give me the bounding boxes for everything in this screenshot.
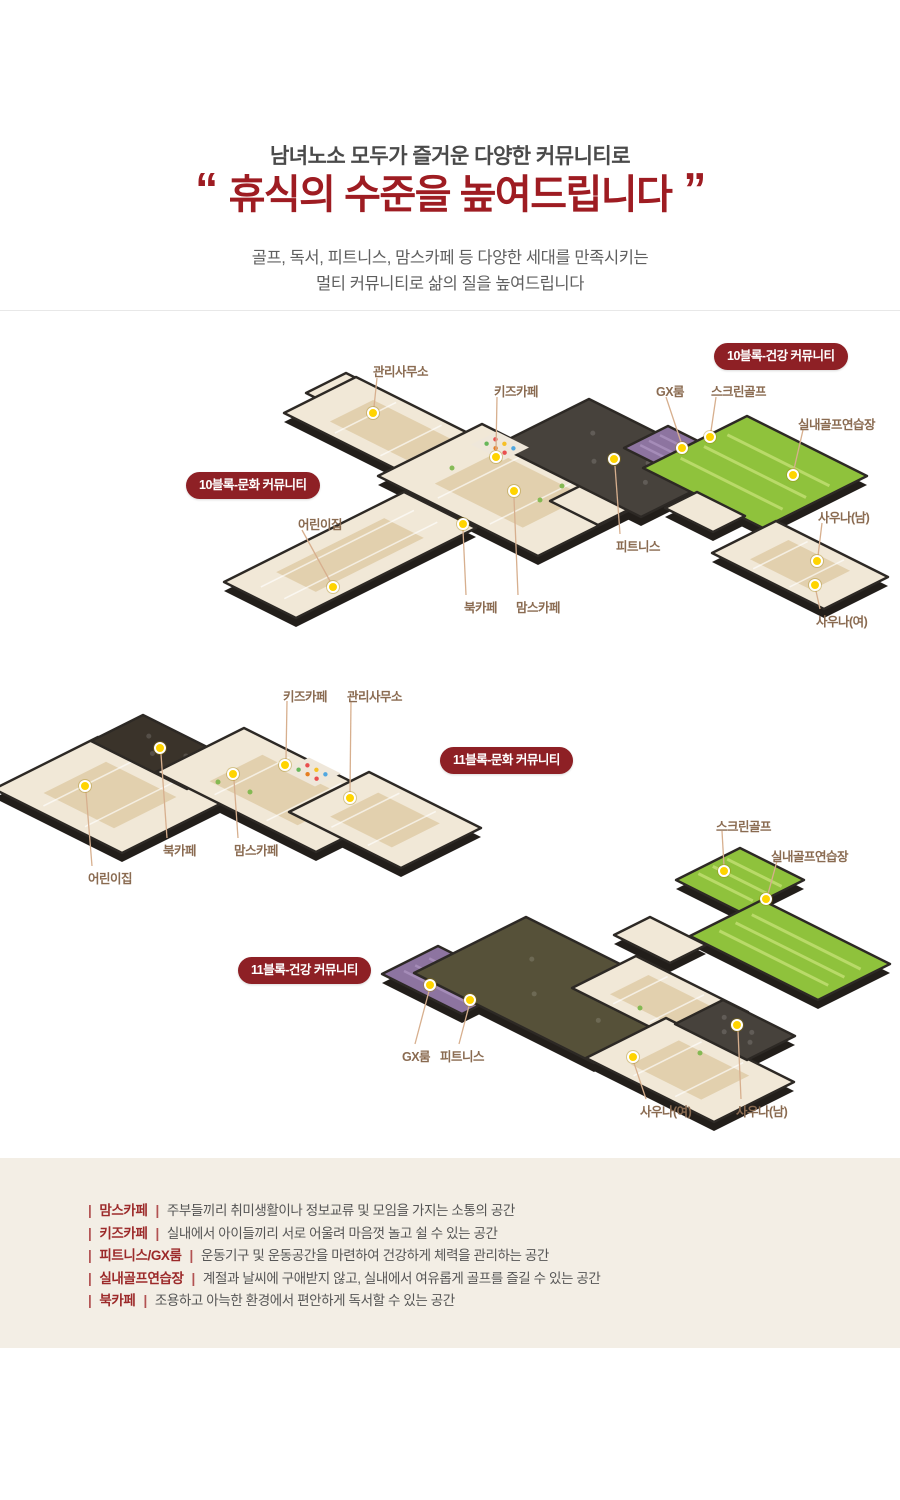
facility-label: 실내골프연습장 (798, 414, 875, 433)
legend-description: 실내에서 아이들끼리 서로 어울려 마음껏 놀고 쉴 수 있는 공간 (167, 1226, 498, 1241)
legend-description: 계절과 날씨에 구애받지 않고, 실내에서 여유롭게 골프를 즐길 수 있는 공… (203, 1271, 600, 1286)
facility-label: 스크린골프 (716, 816, 771, 835)
facility-marker-dot (424, 979, 436, 991)
legend-bar: | (88, 1293, 91, 1308)
facility-label: 맘스카페 (234, 840, 278, 859)
legend-description: 운동기구 및 운동공간을 마련하여 건강하게 체력을 관리하는 공간 (201, 1248, 549, 1263)
facility-label: 피트니스 (440, 1046, 484, 1065)
facility-marker-dot (344, 792, 356, 804)
legend-item: |실내골프연습장|계절과 날씨에 구애받지 않고, 실내에서 여유롭게 골프를 … (88, 1268, 900, 1291)
facility-marker-dot (457, 518, 469, 530)
facility-label: 스크린골프 (711, 381, 766, 400)
legend-term: 피트니스/GX룸 (99, 1248, 181, 1263)
facility-marker-dot (809, 579, 821, 591)
badge-10block-culture: 10블록-문화 커뮤니티 (186, 472, 320, 499)
badge-11block-health: 11블록-건강 커뮤니티 (238, 957, 371, 984)
facility-marker-dot (627, 1051, 639, 1063)
legend-bar: | (88, 1203, 91, 1218)
legend-bar: | (190, 1248, 193, 1263)
facility-marker-dot (508, 485, 520, 497)
legend-item: |북카페|조용하고 아늑한 환경에서 편안하게 독서할 수 있는 공간 (88, 1290, 900, 1313)
facility-marker-dot (227, 768, 239, 780)
facility-label: 어린이집 (298, 514, 342, 533)
legend-item: |피트니스/GX룸|운동기구 및 운동공간을 마련하여 건강하게 체력을 관리하… (88, 1245, 900, 1268)
legend-bar: | (143, 1293, 146, 1308)
legend-description: 조용하고 아늑한 환경에서 편안하게 독서할 수 있는 공간 (155, 1293, 455, 1308)
facility-label: 북카페 (163, 840, 196, 859)
facility-marker-dot (279, 759, 291, 771)
facility-label: 사우나(여) (640, 1101, 691, 1120)
badge-11block-culture: 11블록-문화 커뮤니티 (440, 747, 573, 774)
facility-label: 피트니스 (616, 536, 660, 555)
facility-marker-dot (731, 1019, 743, 1031)
facility-marker-dot (327, 581, 339, 593)
facility-marker-dot (676, 442, 688, 454)
legend-term: 키즈카페 (99, 1226, 147, 1241)
facility-marker-dot (367, 407, 379, 419)
facility-marker-dot (718, 865, 730, 877)
facility-label: GX룸 (402, 1046, 430, 1065)
legend-bar: | (155, 1226, 158, 1241)
facility-label: 키즈카페 (494, 381, 538, 400)
community-intro-page: 남녀노소 모두가 즐거운 다양한 커뮤니티로 “휴식의 수준을 높여드립니다” … (0, 0, 900, 1500)
facility-marker-dot (811, 555, 823, 567)
facility-label: 어린이집 (88, 868, 132, 887)
legend-bar: | (88, 1226, 91, 1241)
facility-label: 사우나(남) (736, 1101, 787, 1120)
legend-bar: | (88, 1248, 91, 1263)
legend-bar: | (192, 1271, 195, 1286)
facility-marker-dot (608, 453, 620, 465)
facility-label: 맘스카페 (516, 597, 560, 616)
facility-label: 관리사무소 (347, 686, 402, 705)
facility-marker-dot (154, 742, 166, 754)
facility-marker-dot (79, 780, 91, 792)
facility-marker-dot (760, 893, 772, 905)
facility-marker-dot (787, 469, 799, 481)
facility-label: GX룸 (656, 381, 684, 400)
facility-marker-dot (464, 994, 476, 1006)
facility-label: 사우나(남) (818, 507, 869, 526)
facility-label: 사우나(여) (816, 611, 867, 630)
legend-item: |맘스카페|주부들끼리 취미생활이나 정보교류 및 모임을 가지는 소통의 공간 (88, 1200, 900, 1223)
facility-label: 북카페 (464, 597, 497, 616)
legend-term: 맘스카페 (99, 1203, 147, 1218)
legend-list: |맘스카페|주부들끼리 취미생활이나 정보교류 및 모임을 가지는 소통의 공간… (0, 1158, 900, 1313)
legend-bar: | (155, 1203, 158, 1218)
facility-marker-dot (704, 431, 716, 443)
legend-item: |키즈카페|실내에서 아이들끼리 서로 어울려 마음껏 놀고 쉴 수 있는 공간 (88, 1223, 900, 1246)
legend-term: 북카페 (99, 1293, 135, 1308)
facility-label: 실내골프연습장 (771, 846, 848, 865)
facility-label: 키즈카페 (283, 686, 327, 705)
legend-description: 주부들끼리 취미생활이나 정보교류 및 모임을 가지는 소통의 공간 (167, 1203, 515, 1218)
facility-marker-dot (490, 451, 502, 463)
facility-label: 관리사무소 (373, 361, 428, 380)
legend-section: |맘스카페|주부들끼리 취미생활이나 정보교류 및 모임을 가지는 소통의 공간… (0, 1158, 900, 1348)
badge-10block-health: 10블록-건강 커뮤니티 (714, 343, 848, 370)
legend-term: 실내골프연습장 (99, 1271, 183, 1286)
legend-bar: | (88, 1271, 91, 1286)
